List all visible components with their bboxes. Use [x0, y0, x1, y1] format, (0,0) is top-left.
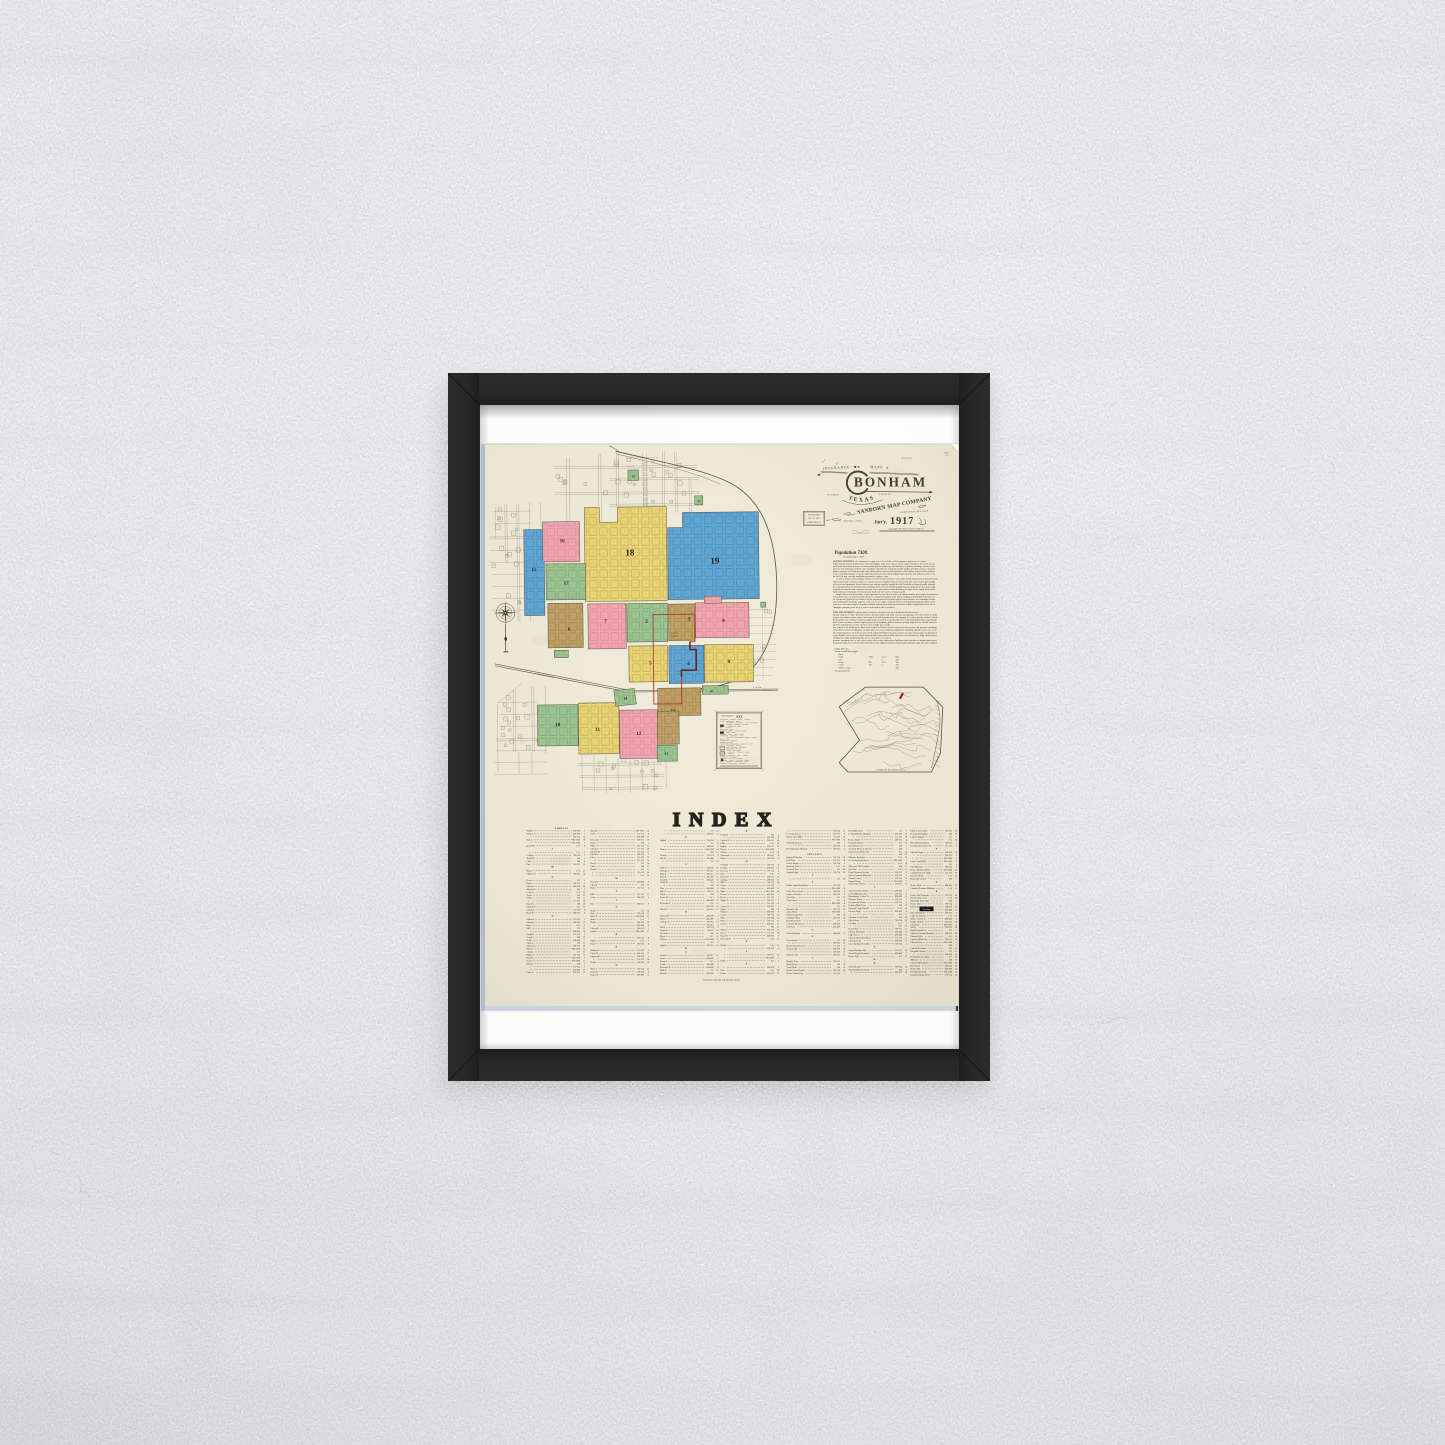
svg-text:8: 8	[717, 888, 718, 890]
svg-text:SPECIALS: SPECIALS	[807, 853, 822, 856]
svg-text:4: 4	[583, 861, 584, 863]
svg-text:First Masonic: First Masonic	[910, 867, 922, 869]
svg-text:Depot Church Court: Depot Church Court	[786, 946, 805, 948]
svg-text:10: 10	[646, 962, 648, 964]
svg-text:206: 206	[576, 943, 579, 945]
svg-text:4: 4	[843, 900, 844, 902]
svg-text:College: College	[720, 866, 727, 869]
svg-text:508-520: 508-520	[767, 967, 774, 969]
svg-text:Broad: Broad	[659, 973, 665, 975]
svg-text:Fire gong alarm.: Fire gong alarm.	[833, 670, 850, 672]
svg-text:1-15: 1-15	[576, 870, 580, 872]
svg-text:9: 9	[843, 933, 844, 935]
svg-text:Katy E.: Katy E.	[659, 873, 666, 875]
svg-text:Baker E.: Baker E.	[526, 903, 534, 905]
svg-text:508-520: 508-520	[637, 971, 644, 973]
svg-text:300-312: 300-312	[706, 955, 713, 957]
svg-text:First: First	[590, 857, 594, 859]
svg-text:Davis: Davis	[590, 863, 595, 865]
svg-text:3: 3	[955, 930, 956, 932]
svg-text:9: 9	[777, 873, 778, 875]
svg-text:608-620: 608-620	[945, 954, 952, 956]
svg-text:608-620: 608-620	[637, 903, 644, 905]
svg-text:Tenth: Tenth	[526, 895, 532, 897]
svg-text:2-Horse wagon: 2-Horse wagon	[838, 666, 851, 669]
svg-text:206: 206	[836, 964, 839, 966]
svg-text:900-1008: 900-1008	[832, 839, 840, 841]
svg-text:MAP 14 1917: MAP 14 1917	[901, 457, 912, 460]
svg-text:13: 13	[842, 951, 844, 953]
svg-text:is service mains works standpi: is service mains works standpipe pounds …	[835, 578, 937, 581]
svg-text:5: 5	[647, 887, 648, 889]
svg-text:Chestnut: Chestnut	[659, 933, 667, 935]
svg-text:608-620: 608-620	[833, 948, 840, 950]
svg-text:1-15: 1-15	[770, 945, 774, 947]
svg-text:8: 8	[955, 852, 956, 854]
svg-text:16: 16	[904, 917, 906, 919]
svg-text:Hunt: Hunt	[720, 858, 725, 860]
svg-text:15: 15	[954, 936, 956, 938]
svg-text:300-312: 300-312	[767, 900, 774, 902]
svg-text:3: 3	[717, 964, 718, 966]
svg-text:West S.: West S.	[590, 968, 597, 970]
svg-text:300-312: 300-312	[945, 921, 952, 923]
svg-text:7: 7	[717, 894, 718, 896]
svg-text:Population 7300.: Population 7300.	[834, 551, 868, 556]
svg-text:Texas Light: Texas Light	[786, 947, 797, 950]
svg-text:Lumber Church: Lumber Church	[786, 894, 801, 896]
svg-text:13: 13	[954, 875, 956, 877]
svg-text:1-15: 1-15	[770, 843, 774, 845]
svg-text:Hunt: Hunt	[720, 897, 725, 899]
svg-text:Plum W.: Plum W.	[590, 953, 598, 955]
svg-text:900-1008: 900-1008	[636, 830, 644, 832]
svg-text:1-15: 1-15	[898, 869, 902, 871]
svg-text:1-15: 1-15	[948, 839, 952, 841]
svg-text:206: 206	[836, 842, 839, 844]
svg-text:300-312: 300-312	[833, 909, 840, 911]
svg-text:19: 19	[954, 830, 956, 832]
svg-text:3: 3	[843, 885, 844, 887]
svg-text:608-620: 608-620	[895, 896, 902, 898]
svg-text:206: 206	[898, 845, 901, 847]
svg-text:11: 11	[776, 876, 778, 878]
svg-text:12: 12	[582, 928, 584, 930]
svg-text:400-408: 400-408	[706, 918, 713, 920]
svg-text:18: 18	[842, 915, 844, 917]
svg-text:300-312: 300-312	[895, 875, 902, 877]
svg-text:Third: Third	[590, 940, 596, 942]
svg-text:17: 17	[842, 954, 844, 956]
svg-text:900-1008: 900-1008	[572, 842, 580, 844]
svg-text:Church Church House: Church Church House	[848, 890, 868, 892]
svg-text:Clinton N.: Clinton N.	[526, 873, 536, 875]
svg-text:15: 15	[954, 906, 956, 908]
svg-text:18: 18	[842, 943, 844, 945]
svg-text:H: H	[745, 861, 747, 863]
svg-text:311: 311	[898, 830, 901, 832]
svg-text:608-620: 608-620	[945, 867, 952, 869]
svg-text:15: 15	[776, 938, 778, 940]
svg-text:Masonic Bonham: Masonic Bonham	[848, 857, 864, 859]
svg-text:700-714: 700-714	[833, 970, 840, 972]
svg-text:PRESTON: PRESTON	[626, 466, 635, 468]
svg-text:206: 206	[710, 933, 713, 935]
svg-text:508-520: 508-520	[767, 948, 774, 950]
svg-text:11: 11	[646, 869, 648, 871]
svg-text:Chestnut: Chestnut	[590, 848, 598, 850]
svg-text:311: 311	[710, 942, 713, 944]
svg-text:206: 206	[948, 948, 951, 950]
svg-text:12: 12	[776, 954, 778, 956]
svg-text:1-15: 1-15	[640, 919, 644, 921]
svg-text:Ladder 40-ft. lbs.: Ladder 40-ft. lbs.	[834, 647, 849, 650]
svg-text:Electric High: Electric High	[848, 910, 861, 913]
svg-text:300-312: 300-312	[945, 912, 952, 914]
svg-text:16: 16	[904, 920, 906, 922]
svg-text:8: 8	[777, 912, 778, 914]
svg-text:14: 14	[954, 954, 956, 956]
svg-text:700-714: 700-714	[833, 863, 840, 865]
svg-text:Gum: Gum	[659, 958, 664, 960]
svg-text:Eleventh: Eleventh	[590, 928, 599, 930]
svg-text:Oak S.: Oak S.	[526, 839, 533, 841]
svg-text:Mill: Mill	[590, 894, 594, 896]
svg-text:17: 17	[563, 582, 569, 587]
svg-text:Lumber Baptist: Lumber Baptist	[910, 836, 924, 838]
svg-text:11: 11	[646, 913, 648, 915]
svg-text:Hall Christian Methodi: Hall Christian Methodi	[786, 848, 807, 850]
svg-text:10: 10	[716, 945, 718, 947]
svg-text:508-520: 508-520	[637, 956, 644, 958]
svg-text:16: 16	[559, 539, 565, 544]
svg-text:Vine: Vine	[659, 888, 663, 890]
svg-text:900-1008: 900-1008	[832, 912, 840, 914]
svg-text:House Depot: House Depot	[848, 839, 860, 841]
svg-text:Lipscomb: Lipscomb	[590, 956, 600, 958]
svg-text:206: 206	[898, 905, 901, 907]
svg-text:206: 206	[836, 915, 839, 917]
svg-text:15: 15	[716, 852, 718, 854]
svg-text:Depot Allen Mills: Depot Allen Mills	[786, 835, 802, 838]
svg-text:5: 5	[955, 901, 956, 903]
svg-text:508-520: 508-520	[706, 846, 713, 848]
svg-text:7: 7	[583, 957, 584, 959]
svg-text:111-123: 111-123	[767, 897, 774, 899]
svg-text:18: 18	[954, 971, 956, 973]
svg-text:Clark: Clark	[590, 866, 596, 868]
svg-text:900-1008: 900-1008	[636, 931, 644, 933]
svg-text:400-408: 400-408	[895, 890, 902, 892]
svg-text:14: 14	[954, 974, 956, 976]
svg-text:900-1008: 900-1008	[705, 849, 713, 851]
svg-text:8: 8	[955, 861, 956, 863]
svg-text:West: West	[720, 920, 725, 922]
svg-text:7: 7	[583, 855, 584, 857]
svg-text:16: 16	[716, 885, 718, 887]
svg-text:Star: Star	[590, 903, 594, 905]
svg-text:Baptist Plant Star: Baptist Plant Star	[786, 857, 802, 859]
svg-text:Hunt: Hunt	[590, 943, 595, 945]
svg-text:2: 2	[843, 842, 844, 844]
svg-text:Johnson E.: Johnson E.	[526, 889, 536, 891]
svg-text:Baptist Light: Baptist Light	[786, 871, 798, 874]
svg-text:111-123: 111-123	[767, 932, 774, 934]
svg-text:Church Grounds Masonic: Church Grounds Masonic	[910, 933, 933, 935]
svg-text:13: 13	[776, 867, 778, 869]
svg-text:9: 9	[717, 942, 718, 944]
svg-text:2: 2	[647, 928, 648, 930]
svg-text:700-714: 700-714	[945, 903, 952, 905]
svg-text:111-123: 111-123	[573, 919, 580, 921]
svg-text:2: 2	[583, 858, 584, 860]
svg-text:311: 311	[710, 830, 713, 832]
svg-text:608-620: 608-620	[706, 958, 713, 960]
svg-text:Agnew: Agnew	[526, 942, 533, 945]
svg-text:Evans W.: Evans W.	[659, 897, 668, 899]
svg-text:Hospital Light Church: Hospital Light Church	[848, 907, 869, 910]
svg-text:Grand: Grand	[659, 855, 665, 857]
svg-text:Davis: Davis	[720, 932, 725, 934]
svg-text:206: 206	[576, 903, 579, 905]
svg-text:700-714: 700-714	[833, 830, 840, 832]
svg-text:111-123: 111-123	[945, 872, 952, 874]
svg-text:Presbyterian Hall: Presbyterian Hall	[910, 971, 926, 973]
svg-text:300-312: 300-312	[895, 893, 902, 895]
svg-text:16: 16	[904, 836, 906, 838]
svg-text:11: 11	[904, 842, 906, 844]
svg-text:8: 8	[647, 943, 648, 945]
svg-text:12: 12	[582, 864, 584, 866]
svg-text:311: 311	[898, 956, 901, 958]
svg-text:150: 150	[895, 665, 898, 667]
svg-text:311: 311	[710, 861, 713, 863]
svg-text:400-408: 400-408	[706, 900, 713, 902]
svg-text:7: 7	[583, 940, 584, 942]
svg-text:Willow: Willow	[526, 833, 533, 835]
svg-text:11: 11	[582, 960, 584, 962]
svg-text:7: 7	[955, 878, 956, 880]
svg-text:16: 16	[904, 950, 906, 952]
svg-text:15: 15	[904, 833, 906, 835]
svg-text:feet steam bell gallons city m: feet steam bell gallons city mains deep …	[832, 598, 934, 601]
svg-text:900-1008: 900-1008	[944, 962, 952, 964]
svg-text:2-horse combination wagon: 2-horse combination wagon	[834, 650, 857, 653]
svg-text:206: 206	[948, 960, 951, 962]
svg-text:1-15: 1-15	[898, 908, 902, 910]
svg-text:11: 11	[646, 916, 648, 918]
svg-text:6: 6	[955, 864, 956, 866]
svg-text:11: 11	[904, 937, 906, 939]
svg-text:7: 7	[777, 885, 778, 887]
svg-text:4: 4	[843, 912, 844, 914]
svg-text:111-123: 111-123	[833, 946, 840, 948]
svg-text:5: 5	[717, 840, 718, 842]
svg-text:Court Church: Court Church	[848, 966, 861, 968]
svg-text:H: H	[615, 965, 617, 967]
svg-text:13: 13	[842, 836, 844, 838]
svg-text:Plum: Plum	[659, 849, 664, 851]
svg-text:Clark: Clark	[720, 843, 726, 845]
svg-text:8: 8	[905, 872, 906, 874]
svg-text:400-408: 400-408	[895, 934, 902, 936]
svg-text:111-123: 111-123	[767, 903, 774, 905]
svg-text:I: I	[616, 900, 617, 902]
svg-text:1-15: 1-15	[640, 940, 644, 942]
svg-text:Star: Star	[590, 913, 594, 915]
svg-text:6: 6	[583, 845, 584, 847]
svg-text:311: 311	[710, 970, 713, 972]
svg-text:206: 206	[710, 885, 713, 887]
svg-text:STREETS: STREETS	[554, 827, 568, 830]
svg-text:111-123: 111-123	[637, 857, 644, 859]
svg-text:Plum: Plum	[720, 960, 725, 962]
svg-text:19: 19	[582, 901, 584, 903]
svg-text:18: 18	[954, 833, 956, 835]
svg-text:111-123: 111-123	[706, 891, 713, 893]
svg-text:4: 4	[905, 839, 906, 841]
svg-text:400-408: 400-408	[833, 926, 840, 928]
svg-text:12: 12	[636, 732, 642, 737]
svg-text:14: 14	[842, 917, 844, 919]
svg-text:311: 311	[836, 869, 839, 871]
svg-text:311: 311	[576, 880, 579, 882]
svg-text:* Indicates only one side of s: * Indicates only one side of street show…	[702, 978, 740, 981]
svg-text:3: 3	[777, 870, 778, 872]
svg-text:111-123: 111-123	[637, 894, 644, 896]
svg-text:300-312: 300-312	[767, 954, 774, 956]
svg-text:900-1008: 900-1008	[944, 858, 952, 860]
svg-text:14: 14	[842, 869, 844, 871]
svg-text:Chestnut: Chestnut	[526, 909, 534, 911]
svg-text:good street of of gates suppli: good street of of gates supplied departm…	[832, 603, 934, 606]
svg-text:Plum: Plum	[526, 883, 531, 885]
svg-text:Scale 50 ft. to an inch.: Scale 50 ft. to an inch.	[843, 519, 862, 522]
svg-text:Church Office: Church Office	[910, 935, 923, 938]
svg-text:17: 17	[582, 969, 584, 971]
svg-text:700-714: 700-714	[895, 920, 902, 922]
svg-text:Court Jail: Court Jail	[910, 924, 919, 926]
svg-text:250: 250	[895, 659, 898, 661]
svg-text:Church Mills Depot: Church Mills Depot	[910, 962, 928, 964]
svg-text:5: 5	[647, 842, 648, 844]
svg-text:508-520: 508-520	[833, 845, 840, 847]
svg-text:Church W.: Church W.	[590, 851, 600, 853]
svg-text:608-620: 608-620	[945, 965, 952, 967]
svg-text:Baker N.: Baker N.	[590, 974, 599, 976]
svg-text:311: 311	[836, 906, 839, 908]
svg-text:311: 311	[898, 926, 901, 928]
svg-text:Porter: Porter	[720, 973, 726, 975]
svg-text:14: 14	[646, 860, 648, 862]
svg-text:O: O	[615, 906, 617, 908]
svg-text:13: 13	[842, 897, 844, 899]
svg-text:G: G	[811, 957, 813, 959]
svg-text:3: 3	[583, 934, 584, 936]
svg-text:First City: First City	[786, 897, 795, 899]
svg-text:300-312: 300-312	[706, 873, 713, 875]
svg-text:311: 311	[898, 842, 901, 844]
svg-text:5: 5	[905, 845, 906, 847]
svg-text:College W.: College W.	[659, 920, 669, 923]
svg-text:608-620: 608-620	[573, 830, 580, 832]
svg-text:400-408: 400-408	[706, 858, 713, 860]
svg-text:Prevailing winds, S. and W.: Prevailing winds, S. and W.	[843, 556, 864, 559]
svg-text:508-520: 508-520	[637, 922, 644, 924]
svg-text:6: 6	[717, 882, 718, 884]
svg-text:13: 13	[582, 954, 584, 956]
svg-text:1 1/2: 1 1/2	[881, 662, 885, 664]
svg-text:608-620: 608-620	[706, 833, 713, 835]
svg-text:311: 311	[836, 878, 839, 880]
svg-text:Copyright 1917 by the Sanborn: Copyright 1917 by the Sanborn Map Co.	[888, 527, 924, 530]
svg-text:Inglish: Inglish	[659, 839, 666, 842]
svg-text:Willow: Willow	[659, 939, 666, 941]
svg-text:400-408: 400-408	[945, 909, 952, 911]
svg-text:900-1008: 900-1008	[766, 957, 774, 959]
svg-text:School House Star: School House Star	[910, 898, 927, 900]
svg-text:14: 14	[646, 910, 648, 912]
svg-text:13: 13	[646, 968, 648, 970]
svg-text:206: 206	[770, 909, 773, 911]
svg-text:13: 13	[646, 836, 648, 838]
svg-text:Masonic Depot: Masonic Depot	[848, 899, 862, 901]
svg-text:5: 5	[583, 883, 584, 885]
svg-text:311: 311	[898, 851, 901, 853]
svg-text:4: 4	[955, 924, 956, 926]
svg-text:Hill N.: Hill N.	[659, 858, 666, 860]
svg-text:Mill: Mill	[526, 928, 530, 930]
svg-text:15: 15	[776, 945, 778, 947]
svg-text:300-312: 300-312	[833, 917, 840, 919]
svg-text:of fire town department locate: of fire town department located gates to…	[832, 583, 934, 586]
svg-text:7: 7	[905, 899, 906, 901]
svg-text:9: 9	[717, 846, 718, 848]
svg-text:5: 5	[777, 967, 778, 969]
svg-text:14: 14	[904, 966, 906, 968]
svg-text:Tenth: Tenth	[526, 940, 532, 942]
svg-text:9: 9	[717, 897, 718, 899]
svg-text:12 Map: 12 Map	[943, 452, 948, 454]
svg-text:16: 16	[954, 962, 956, 964]
svg-text:206: 206	[770, 926, 773, 928]
svg-text:300-312: 300-312	[767, 876, 774, 878]
svg-text:1-15: 1-15	[770, 970, 774, 972]
svg-text:1-15: 1-15	[948, 875, 952, 877]
svg-text:H: H	[685, 948, 687, 950]
svg-text:Lone Court Mills: Lone Court Mills	[910, 861, 926, 863]
svg-text:1-15: 1-15	[898, 863, 902, 865]
svg-text:15: 15	[716, 903, 718, 905]
svg-text:400-408: 400-408	[767, 917, 774, 919]
svg-text:300-312: 300-312	[706, 870, 713, 872]
svg-text:department single two wells ta: department single two wells tank bell da…	[832, 641, 937, 644]
svg-text:Allen House: Allen House	[786, 911, 797, 914]
svg-text:Third: Third	[659, 894, 665, 896]
svg-text:Katy Hall Church: Katy Hall Church	[910, 878, 927, 880]
svg-text:13: 13	[716, 861, 718, 863]
svg-text:700-714: 700-714	[706, 945, 713, 947]
svg-text:Baker: Baker	[590, 842, 596, 844]
svg-text:Memorial Plant Hall: Memorial Plant Hall	[910, 901, 929, 903]
svg-text:Cotton Masonic Star: Cotton Masonic Star	[848, 893, 867, 895]
svg-text:12: 12	[954, 957, 956, 959]
svg-text:COUNTY: COUNTY	[879, 493, 892, 496]
svg-text:700-714: 700-714	[895, 943, 902, 945]
svg-text:311: 311	[710, 843, 713, 845]
svg-text:111-123: 111-123	[833, 885, 840, 887]
svg-text:12: 12	[582, 892, 584, 894]
